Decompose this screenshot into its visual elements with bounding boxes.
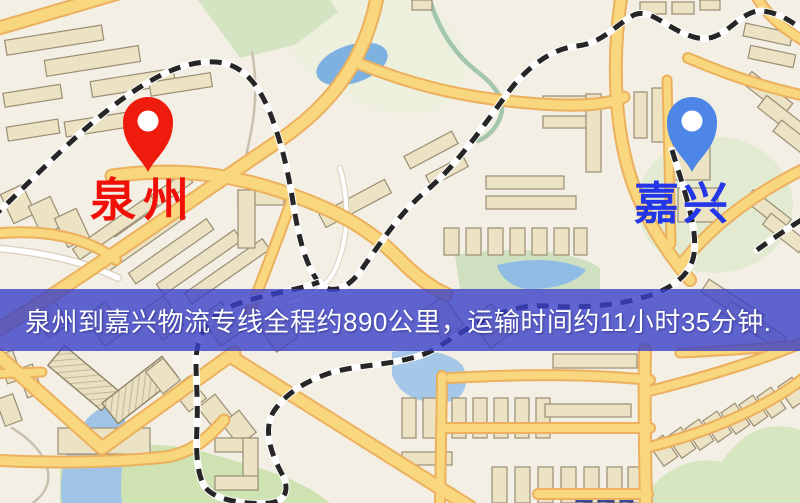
origin-city-label: 泉州 [90,177,196,223]
map-canvas: 泉州 嘉兴 泉州到嘉兴物流专线全程约890公里，运输时间约11小时35分钟. [0,0,800,503]
route-info-banner: 泉州到嘉兴物流专线全程约890公里，运输时间约11小时35分钟. [0,289,800,351]
map-image [0,0,800,503]
route-info-text: 泉州到嘉兴物流专线全程约890公里，运输时间约11小时35分钟. [25,302,772,339]
destination-city-label: 嘉兴 [634,181,732,226]
